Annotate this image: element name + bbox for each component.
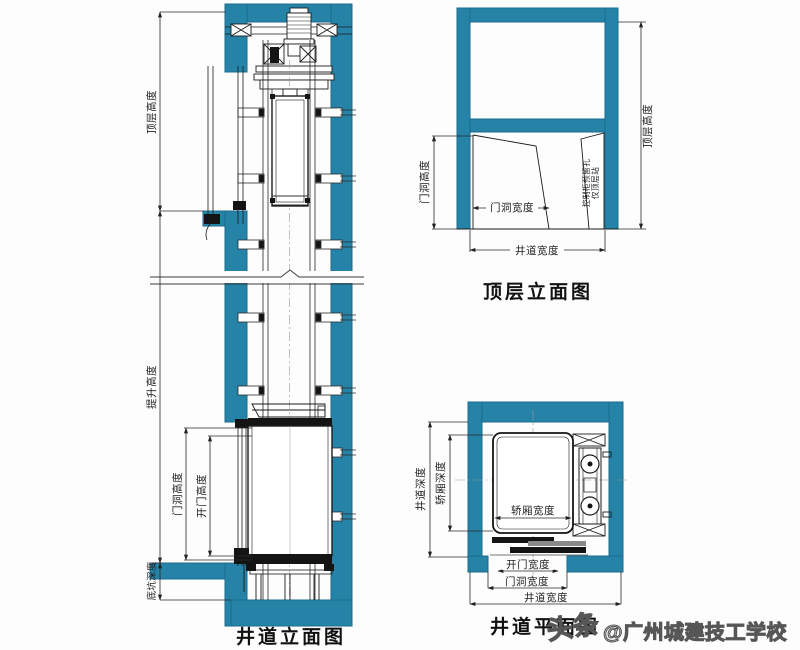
dim-door-open-height: 开门高度 bbox=[195, 474, 208, 518]
shaft-plan-drawing: 井道深度 轿厢深度 轿厢宽度 开门宽度 门洞宽度 井道宽度 井道平面图 bbox=[414, 402, 630, 638]
break-line bbox=[150, 270, 366, 284]
counterweight-assembly bbox=[573, 434, 611, 536]
dim-door-open-width: 开门宽度 bbox=[506, 558, 550, 571]
scanned-elevator-drawing: 顶层高度 提升高度 底坑深度 门洞高度 开门高度 井道立面图 控制柜预留孔 仅顶… bbox=[0, 0, 800, 650]
watermark: 头条 @广州城建技工学校 bbox=[545, 608, 788, 645]
dim-pit-depth: 底坑深度 bbox=[146, 561, 158, 600]
shaft-elevation-drawing: 顶层高度 提升高度 底坑深度 门洞高度 开门高度 井道立面图 bbox=[145, 4, 366, 648]
dim-travel-height: 提升高度 bbox=[145, 365, 158, 409]
dim-door-opening-width: 门洞宽度 bbox=[505, 575, 549, 588]
dim-top-floor-height: 顶层高度 bbox=[145, 90, 158, 134]
dim-top-floor-height: 顶层高度 bbox=[641, 104, 654, 148]
dim-door-opening-height: 门洞高度 bbox=[171, 472, 184, 516]
dim-car-width: 轿厢宽度 bbox=[511, 504, 555, 517]
dim-shaft-depth: 井道深度 bbox=[414, 467, 427, 511]
dim-car-depth: 轿厢深度 bbox=[434, 461, 447, 505]
watermark-text: @广州城建技工学校 bbox=[603, 620, 788, 644]
counterweight-frame bbox=[270, 89, 310, 206]
drawing-canvas: 顶层高度 提升高度 底坑深度 门洞高度 开门高度 井道立面图 控制柜预留孔 仅顶… bbox=[0, 0, 800, 650]
elevation-view-title: 井道立面图 bbox=[236, 625, 346, 648]
top-floor-elevation-drawing: 控制柜预留孔 仅顶层站 门洞宽度 井道宽度 门洞高度 顶层高度 顶层立面图 bbox=[418, 8, 654, 303]
control-cabinet-note-line1: 控制柜预留孔 bbox=[581, 159, 591, 208]
elevator-car bbox=[244, 404, 334, 600]
dim-shaft-width: 井道宽度 bbox=[524, 591, 568, 604]
control-cabinet-note-line2: 仅顶层站 bbox=[590, 167, 600, 199]
dim-door-opening-height: 门洞高度 bbox=[418, 160, 431, 204]
dim-door-opening-width: 门洞宽度 bbox=[490, 201, 534, 214]
top-floor-view-title: 顶层立面图 bbox=[483, 280, 593, 303]
dim-shaft-width: 井道宽度 bbox=[515, 244, 559, 257]
watermark-logo: 头条 bbox=[545, 608, 602, 645]
plan-door-panels bbox=[490, 537, 588, 555]
bottom-landing-door bbox=[234, 419, 249, 566]
